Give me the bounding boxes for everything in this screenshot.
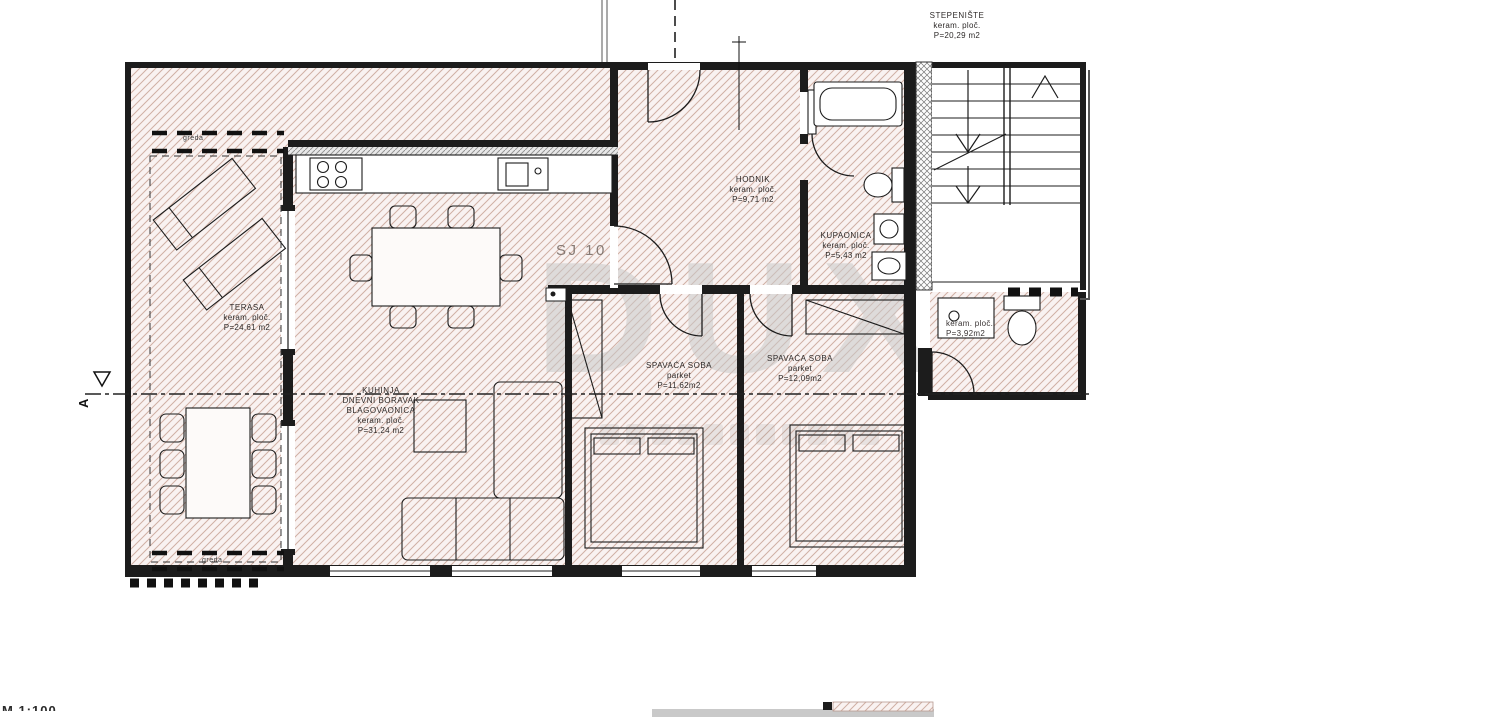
room-name: BLAGOVAONICA (343, 406, 420, 416)
room-finish: keram. ploč. (820, 241, 871, 251)
room-finish: parket (646, 371, 712, 381)
room-label-hodnik: HODNIK keram. ploč. P=9,71 m2 (729, 175, 776, 205)
floor-plan-page: DUX (0, 0, 1500, 717)
room-name: TERASA (223, 303, 270, 313)
room-finish: keram. ploč. (729, 185, 776, 195)
room-label-spavaca-1: SPAVAĆA SOBA parket P=11,62m2 (646, 361, 712, 391)
room-label-terasa: TERASA keram. ploč. P=24,61 m2 (223, 303, 270, 333)
stairs (916, 62, 1089, 300)
toilet-bowl (864, 173, 892, 197)
room-area: P=5,43 m2 (820, 251, 871, 261)
scale-fragment: M 1:100 (2, 703, 122, 711)
room-finish: keram. ploč. (946, 319, 993, 329)
section-arrow (94, 372, 110, 386)
room-finish: keram. ploč. (343, 416, 420, 426)
kitchen-wall-insulation (288, 147, 618, 155)
toilet-tank (892, 168, 904, 202)
room-finish: parket (767, 364, 833, 374)
washing-machine (874, 214, 904, 244)
room-area: P=20,29 m2 (930, 31, 985, 41)
wc-toilet-tank (1004, 296, 1040, 310)
room-area: P=24,61 m2 (223, 323, 270, 333)
room-label-kupaonica: KUPAONICA keram. ploč. P=5,43 m2 (820, 231, 871, 261)
room-name: KUPAONICA (820, 231, 871, 241)
room-name: SPAVAĆA SOBA (767, 354, 833, 364)
room-label-spavaca-2: SPAVAĆA SOBA parket P=12,09m2 (767, 354, 833, 384)
floor-plan-drawing: DUX (0, 0, 1500, 717)
room-area: P=9,71 m2 (729, 195, 776, 205)
terrace-table (186, 408, 250, 518)
kitchen-counter (296, 155, 612, 193)
room-finish: keram. ploč. (223, 313, 270, 323)
section-marker-label: A (76, 398, 91, 408)
room-name: SPAVAĆA SOBA (646, 361, 712, 371)
beam-label-top: greda (183, 135, 203, 142)
room-area: P=12,09m2 (767, 374, 833, 384)
wc-toilet-bowl (1008, 311, 1036, 345)
room-finish: keram. ploč. (930, 21, 985, 31)
beam-label-bottom: greda (202, 557, 222, 564)
bottom-fragments (652, 702, 934, 717)
room-area: P=31,24 m2 (343, 426, 420, 436)
room-name: KUHINJA (343, 386, 420, 396)
room-label-stepeniste: STEPENIŠTE keram. ploč. P=20,29 m2 (930, 11, 985, 41)
room-label-wc: keram. ploč. P=3,92m2 (946, 319, 993, 339)
bathroom-sink (872, 252, 906, 280)
room-name: DNEVNI BORAVAK (343, 396, 420, 406)
room-name: HODNIK (729, 175, 776, 185)
unit-label: SJ 10 (556, 242, 607, 259)
room-area: P=3,92m2 (946, 329, 993, 339)
dining-table (372, 228, 500, 306)
room-label-dnevni-boravak: KUHINJA DNEVNI BORAVAK BLAGOVAONICA kera… (343, 386, 420, 436)
room-name: STEPENIŠTE (930, 11, 985, 21)
room-area: P=11,62m2 (646, 381, 712, 391)
